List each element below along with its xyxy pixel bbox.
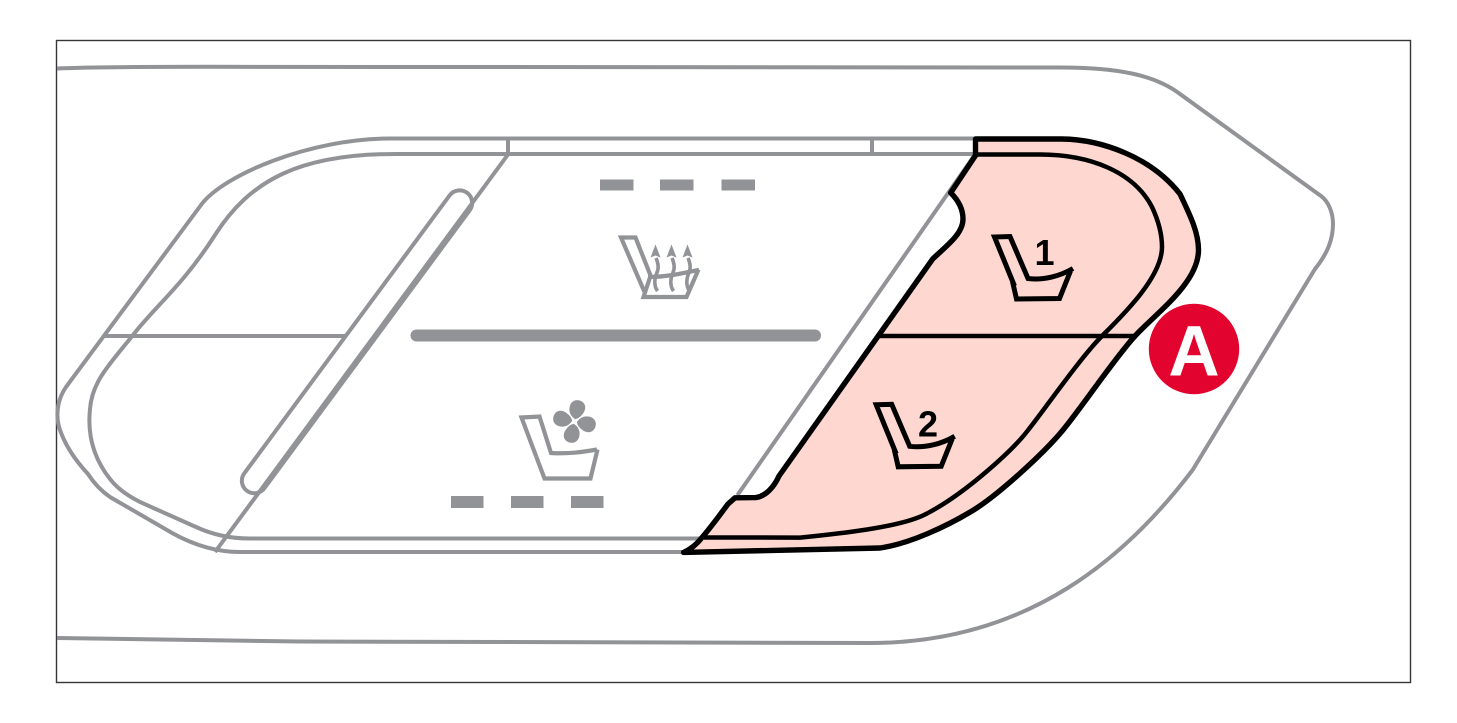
- svg-text:A: A: [1168, 313, 1219, 392]
- svg-text:2: 2: [918, 403, 938, 444]
- svg-text:1: 1: [1034, 232, 1054, 273]
